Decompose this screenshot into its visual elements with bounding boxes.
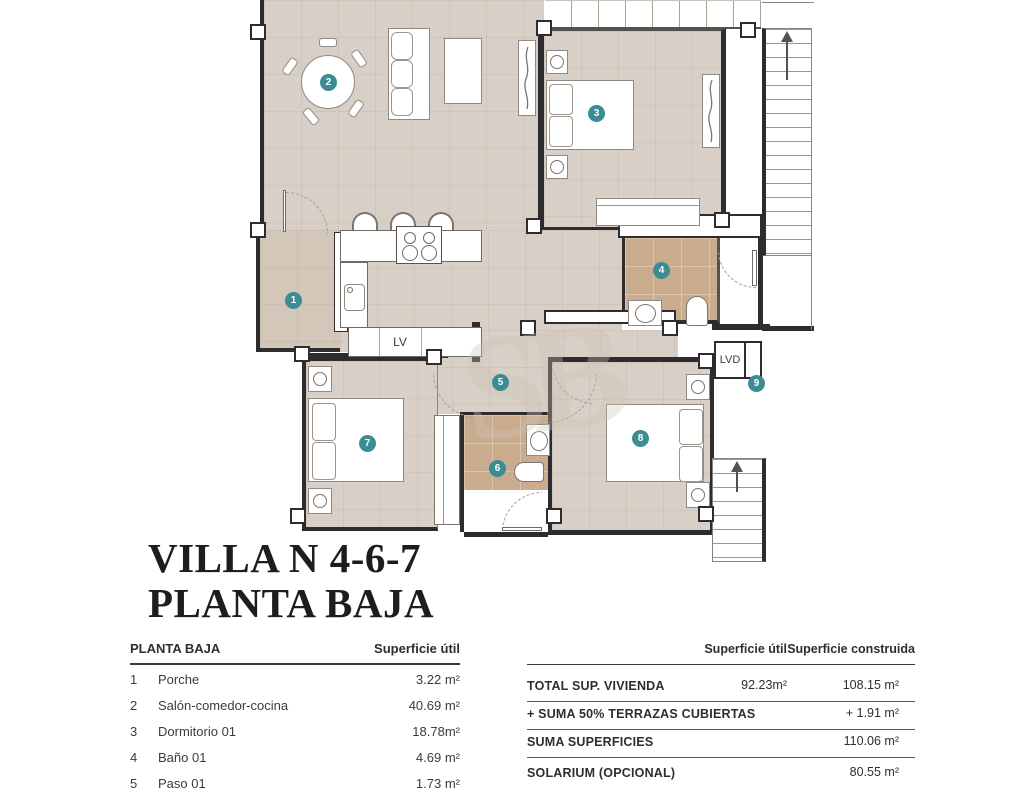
row-name: Salón-comedor-cocina xyxy=(158,698,409,713)
nightstand xyxy=(686,482,710,508)
row-number: 1 xyxy=(130,672,158,687)
washer-label: LVD xyxy=(716,343,744,377)
pillow xyxy=(679,446,703,482)
stair-arrow-stem xyxy=(786,42,788,80)
burner-icon xyxy=(423,232,435,244)
burner-icon xyxy=(404,232,416,244)
bed xyxy=(308,398,404,482)
door-leaf xyxy=(752,250,757,286)
row-value: 1.73 m² xyxy=(416,776,460,791)
nightstand xyxy=(308,488,332,514)
room-badge-1: 1 xyxy=(285,292,302,309)
row-label: + SUMA 50% TERRAZAS CUBIERTAS xyxy=(527,707,755,721)
pillar xyxy=(426,349,442,365)
tv-icon xyxy=(705,76,717,146)
row-built-value: 110.06 m² xyxy=(844,734,899,748)
table-row: SOLARIUM (OPCIONAL) 80.55 m² xyxy=(527,758,915,788)
burner-icon xyxy=(421,245,437,261)
porch-floor xyxy=(256,230,344,352)
toilet xyxy=(686,296,708,326)
burner-icon xyxy=(402,245,418,261)
table-row: SUMA SUPERFICIES 110.06 m² xyxy=(527,730,915,758)
sofa xyxy=(388,28,430,120)
closet-line xyxy=(443,416,444,524)
row-built-value: + 1.91 m² xyxy=(846,706,899,720)
plan-title-line2: PLANTA BAJA xyxy=(148,581,434,626)
wardrobe-line xyxy=(597,205,699,206)
wall-segment xyxy=(460,412,464,532)
stair-up-arrow xyxy=(731,461,743,472)
pillar xyxy=(294,346,310,362)
row-name: Porche xyxy=(158,672,416,687)
room-badge-3: 3 xyxy=(588,105,605,122)
row-number: 4 xyxy=(130,750,158,765)
table-row: 4 Baño 01 4.69 m² xyxy=(130,745,460,769)
pillow xyxy=(549,116,573,147)
lamp-icon xyxy=(550,160,564,174)
pillar xyxy=(250,222,266,238)
nightstand xyxy=(546,50,568,74)
row-name: Dormitorio 01 xyxy=(158,724,412,739)
lamp-icon xyxy=(691,380,705,394)
row-value: 18.78m² xyxy=(412,724,460,739)
pillar xyxy=(740,22,756,38)
floor-plan-page: LV LVD xyxy=(0,0,1024,800)
room-badge-7: 7 xyxy=(359,435,376,452)
lamp-icon xyxy=(313,372,327,386)
pillar xyxy=(698,353,714,369)
room-badge-9: 9 xyxy=(748,375,765,392)
left-table-title: PLANTA BAJA xyxy=(130,641,220,656)
row-value: 3.22 m² xyxy=(416,672,460,687)
room-badge-2: 2 xyxy=(320,74,337,91)
row-built-value: 108.15 m² xyxy=(843,678,899,692)
row-number: 3 xyxy=(130,724,158,739)
pillar xyxy=(662,320,678,336)
closet xyxy=(434,415,460,525)
lamp-icon xyxy=(313,494,327,508)
pillar xyxy=(536,20,552,36)
row-name: Baño 01 xyxy=(158,750,416,765)
tv-icon xyxy=(521,43,533,113)
dining-chair xyxy=(319,38,337,47)
pillar xyxy=(250,24,266,40)
pillow xyxy=(549,84,573,115)
pergola-strip xyxy=(545,0,761,29)
table-row: + SUMA 50% TERRAZAS CUBIERTAS + 1.91 m² xyxy=(527,702,915,730)
sofa-cushion xyxy=(391,32,413,60)
pillow xyxy=(312,403,336,441)
pillar xyxy=(714,212,730,228)
dishwasher-label: LV xyxy=(379,328,421,356)
table-row: 3 Dormitorio 01 18.78m² xyxy=(130,719,460,743)
row-built-value: 80.55 m² xyxy=(850,765,899,779)
tv-unit xyxy=(518,40,536,116)
laundry-closet: LVD xyxy=(714,341,762,379)
pillow xyxy=(679,409,703,445)
pillar xyxy=(290,508,306,524)
staircase-bottom xyxy=(712,458,766,562)
faucet-icon xyxy=(347,287,353,293)
row-value: 4.69 m² xyxy=(416,750,460,765)
door-arc xyxy=(502,492,542,532)
bed xyxy=(606,404,704,482)
bathroom-sink xyxy=(628,300,662,326)
surface-table-left: PLANTA BAJA Superficie útil 1 Porche 3.2… xyxy=(130,641,460,795)
watermark: SB xyxy=(454,312,617,451)
row-label: TOTAL SUP. VIVIENDA xyxy=(527,679,665,693)
wall-segment xyxy=(762,326,814,331)
lamp-icon xyxy=(550,55,564,69)
counter-divider xyxy=(421,328,422,356)
tv-unit xyxy=(702,74,720,148)
wardrobe xyxy=(596,198,700,226)
lamp-icon xyxy=(691,488,705,502)
nightstand xyxy=(686,374,710,400)
pillar xyxy=(546,508,562,524)
pillar xyxy=(698,506,714,522)
room-badge-8: 8 xyxy=(632,430,649,447)
col-header-util: Superficie útil xyxy=(704,642,787,656)
cooktop xyxy=(396,226,442,264)
stair-up-arrow xyxy=(781,31,793,42)
left-table-column: Superficie útil xyxy=(374,641,460,656)
coffee-table xyxy=(444,38,482,104)
room-badge-5: 5 xyxy=(492,374,509,391)
table-row: 2 Salón-comedor-cocina 40.69 m² xyxy=(130,693,460,717)
room-badge-4: 4 xyxy=(653,262,670,279)
kitchen-sink xyxy=(344,284,365,311)
row-name: Paso 01 xyxy=(158,776,416,791)
door-arc xyxy=(286,192,328,234)
nightstand xyxy=(546,155,568,179)
left-table-header: PLANTA BAJA Superficie útil xyxy=(130,641,460,665)
right-table-header: Superficie útil Superficie construida xyxy=(527,638,915,665)
floor-plan: LV LVD xyxy=(250,0,820,566)
closet-divider xyxy=(744,343,746,377)
outer-boundary-line xyxy=(762,2,814,3)
wall-segment xyxy=(538,24,544,230)
door-arc xyxy=(718,250,756,288)
row-label: SOLARIUM (OPCIONAL) xyxy=(527,766,675,780)
room-badge-6: 6 xyxy=(489,460,506,477)
door-leaf xyxy=(502,527,542,531)
pillar xyxy=(526,218,542,234)
row-label: SUMA SUPERFICIES xyxy=(527,735,653,749)
row-number: 2 xyxy=(130,698,158,713)
pillow xyxy=(312,442,336,480)
plan-title-line1: VILLA N 4-6-7 xyxy=(148,536,434,581)
stair-arrow-stem xyxy=(736,472,738,492)
sofa-cushion xyxy=(391,60,413,88)
nightstand xyxy=(308,366,332,392)
row-value: 40.69 m² xyxy=(409,698,460,713)
row-number: 5 xyxy=(130,776,158,791)
plan-title: VILLA N 4-6-7 PLANTA BAJA xyxy=(148,536,434,626)
row-util-value: 92.23m² xyxy=(741,678,787,692)
table-row: 5 Paso 01 1.73 m² xyxy=(130,771,460,795)
basin-icon xyxy=(635,304,656,323)
sofa-cushion xyxy=(391,88,413,116)
table-row: TOTAL SUP. VIVIENDA 92.23m² 108.15 m² xyxy=(527,665,915,702)
col-header-built: Superficie construida xyxy=(787,642,915,656)
table-row: 1 Porche 3.22 m² xyxy=(130,667,460,691)
surface-table-right: Superficie útil Superficie construida TO… xyxy=(527,638,915,788)
